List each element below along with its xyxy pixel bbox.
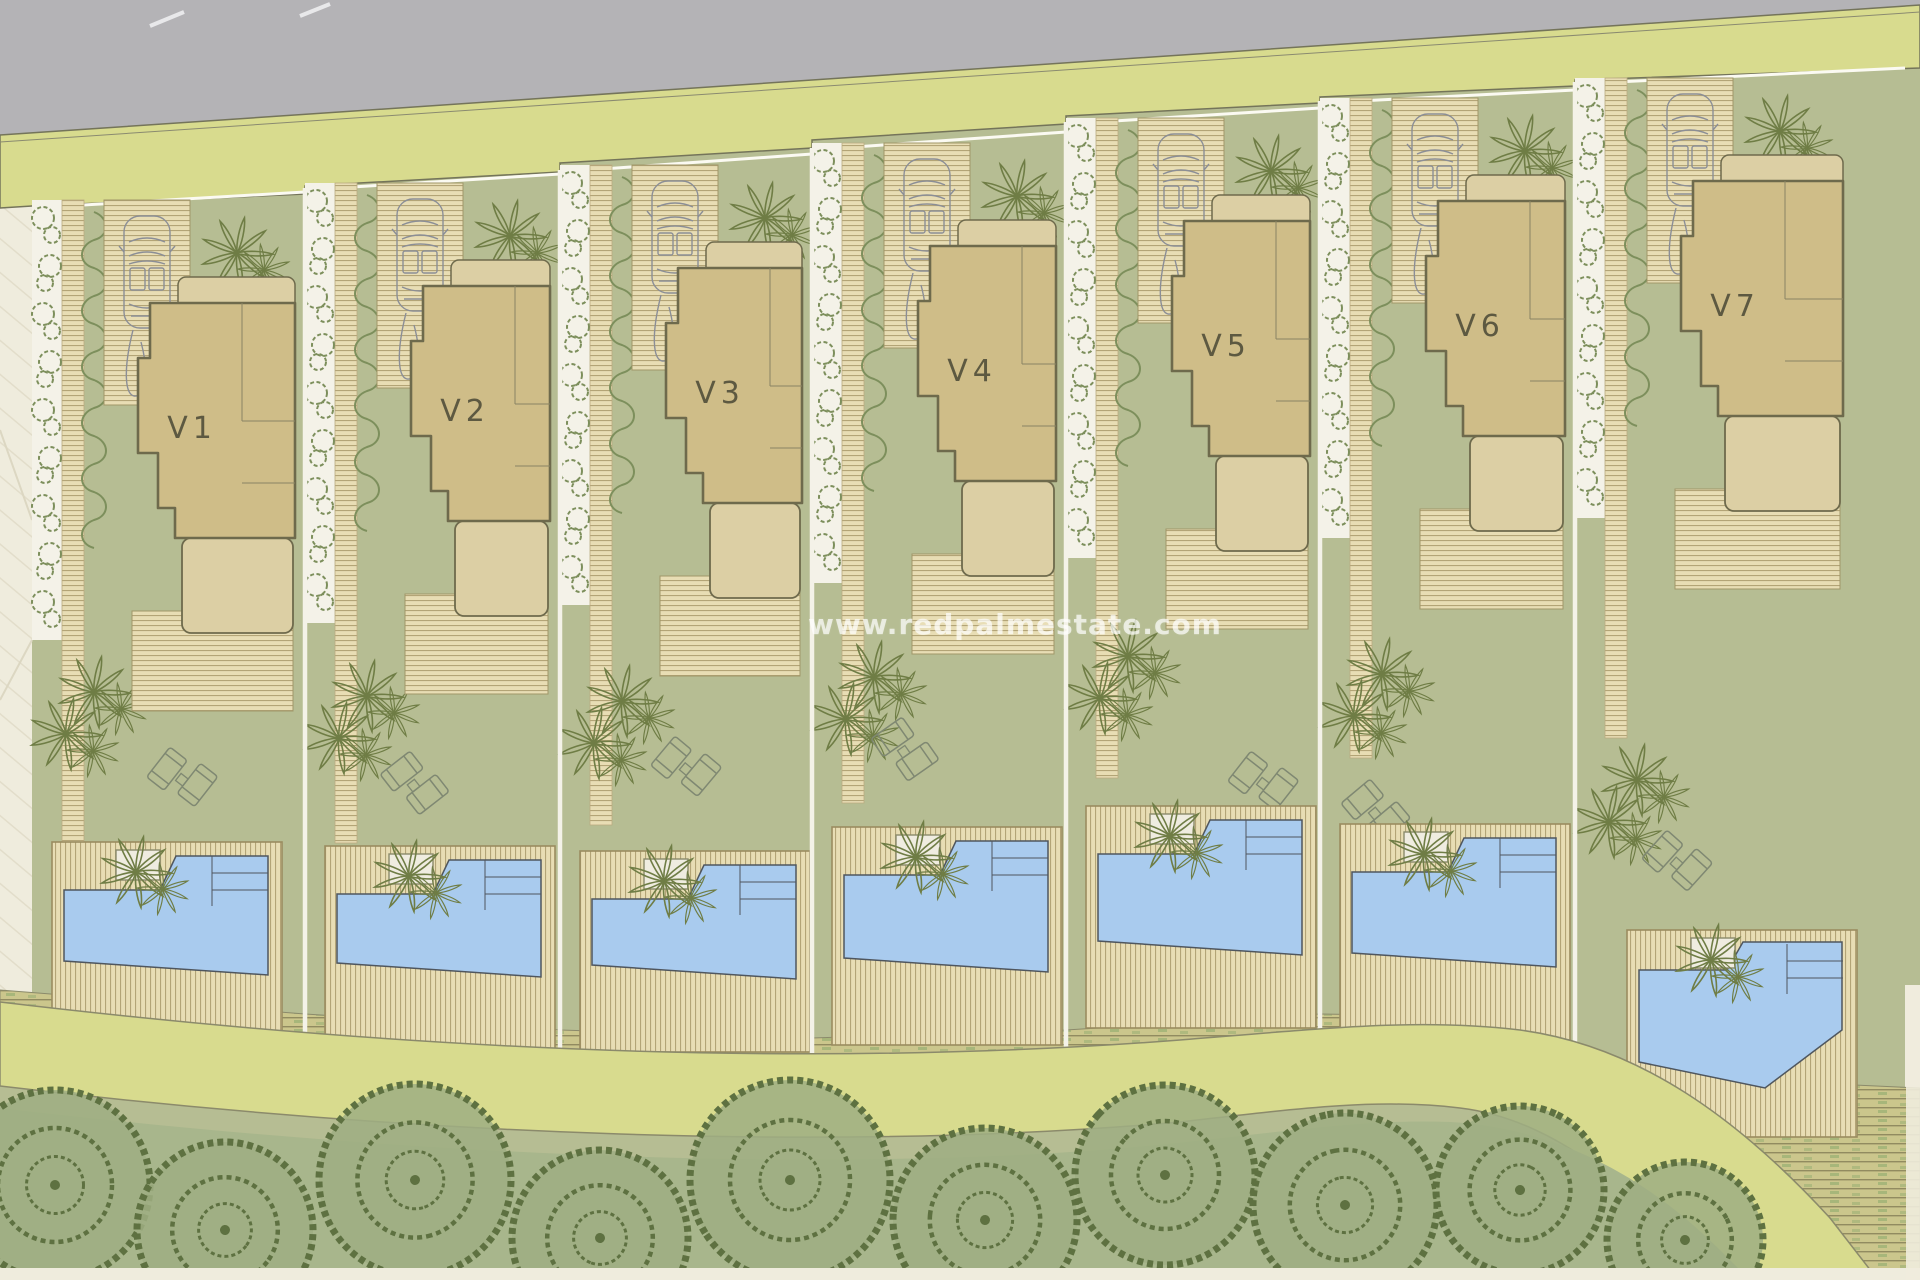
bottom-margin-strip: [0, 1268, 1920, 1280]
villa-label: V2: [440, 394, 490, 429]
pool-area-v2: [325, 840, 555, 1050]
boundary-walkway: [1350, 98, 1372, 758]
left-margin-strip: [0, 200, 32, 1070]
pool-area-v3: [580, 845, 810, 1052]
lower-terrace: [1725, 416, 1840, 511]
lower-terrace: [1216, 456, 1308, 551]
site-plan-canvas: V1V2V3V4V5V6V7: [0, 0, 1920, 1280]
pool-area-v4: [832, 821, 1062, 1045]
villa-label: V4: [947, 354, 997, 389]
villa-label: V3: [695, 376, 745, 411]
lower-terrace: [962, 481, 1054, 576]
boundary-walkway: [1605, 78, 1627, 738]
pool-area-v5: [1086, 800, 1316, 1028]
lower-terrace: [182, 538, 293, 633]
villa-label: V5: [1201, 329, 1251, 364]
boundary-walkway: [62, 200, 84, 860]
villa-label: V7: [1710, 289, 1760, 324]
lower-terrace: [1470, 436, 1563, 531]
villa-label: V1: [167, 411, 217, 446]
villa-label: V6: [1455, 309, 1505, 344]
lower-terrace: [455, 521, 548, 616]
tree-canopy-icon: [0, 1090, 150, 1280]
pool-area-v6: [1340, 818, 1570, 1040]
site-plan: V1V2V3V4V5V6V7 www.redpalmestate.com: [0, 0, 1920, 1280]
lower-terrace: [710, 503, 800, 598]
